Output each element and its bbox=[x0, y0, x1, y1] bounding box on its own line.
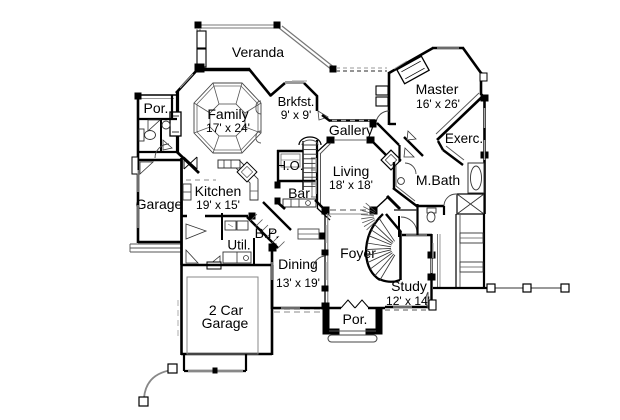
svg-text:19' x 15': 19' x 15' bbox=[196, 198, 240, 212]
svg-text:M.Bath: M.Bath bbox=[416, 172, 460, 188]
svg-text:12' x 14': 12' x 14' bbox=[386, 294, 430, 308]
svg-text:Living: Living bbox=[333, 163, 370, 179]
svg-text:Exerc.: Exerc. bbox=[445, 131, 483, 146]
svg-text:Family: Family bbox=[207, 106, 248, 122]
svg-text:13' x 19': 13' x 19' bbox=[276, 276, 320, 290]
svg-text:Util.: Util. bbox=[227, 238, 250, 253]
svg-text:Veranda: Veranda bbox=[232, 44, 284, 60]
svg-text:Master: Master bbox=[416, 81, 459, 97]
svg-text:Por.: Por. bbox=[343, 311, 368, 327]
svg-text:Study: Study bbox=[391, 278, 427, 294]
svg-text:B.P.: B.P. bbox=[255, 225, 280, 241]
svg-text:Por.: Por. bbox=[144, 100, 169, 116]
svg-text:Kitchen: Kitchen bbox=[195, 183, 242, 199]
svg-text:9' x 9': 9' x 9' bbox=[281, 108, 312, 122]
svg-text:Garage: Garage bbox=[136, 196, 183, 212]
svg-text:Gallery: Gallery bbox=[329, 122, 373, 138]
svg-text:Dining: Dining bbox=[278, 256, 318, 272]
svg-text:Garage: Garage bbox=[202, 315, 249, 331]
svg-text:Brkfst.: Brkfst. bbox=[278, 94, 315, 109]
svg-text:H.O.: H.O. bbox=[277, 158, 304, 173]
svg-text:16' x 26': 16' x 26' bbox=[416, 97, 460, 111]
svg-text:17' x 24': 17' x 24' bbox=[206, 121, 250, 135]
svg-text:Foyer: Foyer bbox=[340, 245, 376, 261]
svg-text:18' x 18': 18' x 18' bbox=[329, 178, 373, 192]
